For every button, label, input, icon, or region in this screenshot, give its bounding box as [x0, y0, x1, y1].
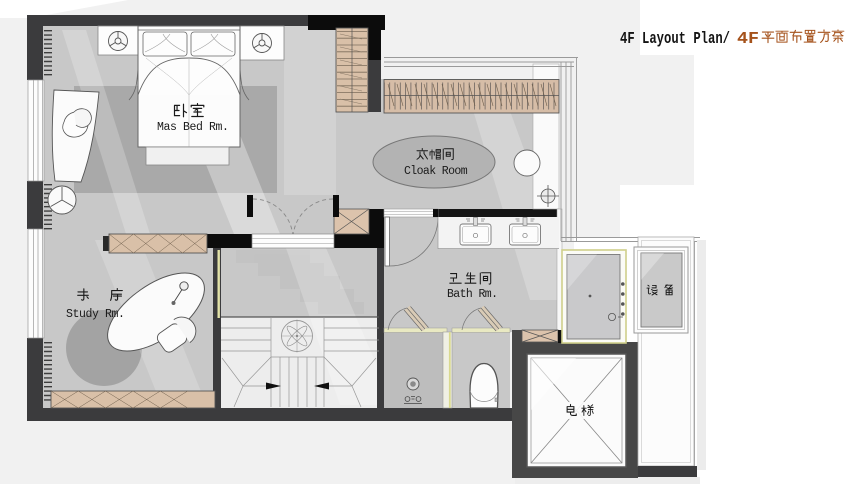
- svg-text:4F: 4F: [737, 30, 759, 49]
- svg-text:4F Layout Plan/: 4F Layout Plan/: [620, 30, 730, 49]
- svg-text:Mas Bed Rm.: Mas Bed Rm.: [157, 121, 229, 134]
- svg-text:Cloak Room: Cloak Room: [404, 165, 468, 178]
- svg-text:Study Rm.: Study Rm.: [66, 308, 125, 321]
- svg-text:Bath Rm.: Bath Rm.: [447, 288, 497, 301]
